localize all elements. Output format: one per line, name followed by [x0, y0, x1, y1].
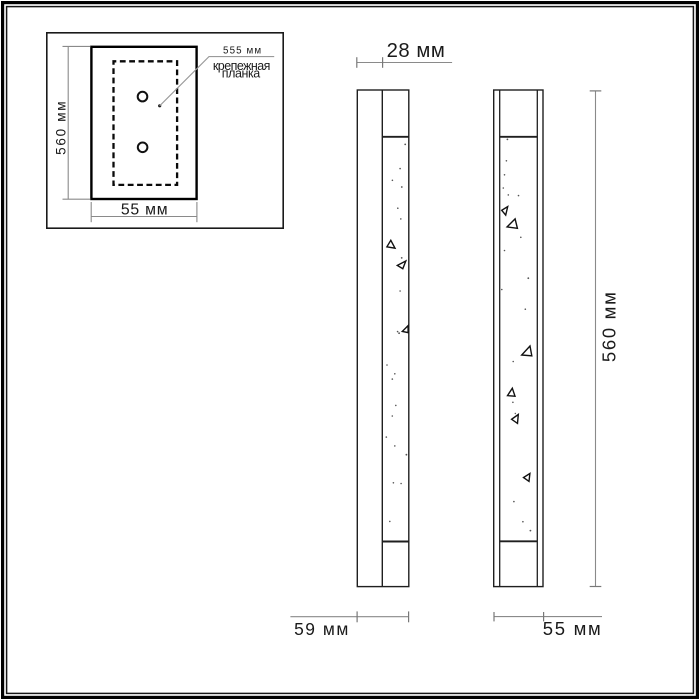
svg-text:555 мм: 555 мм — [223, 46, 262, 57]
svg-text:560 мм: 560 мм — [53, 100, 68, 155]
svg-text:59 мм: 59 мм — [294, 619, 350, 639]
svg-text:560 мм: 560 мм — [599, 290, 620, 362]
svg-text:28 мм: 28 мм — [387, 40, 446, 62]
svg-text:планка: планка — [222, 67, 261, 81]
svg-text:55 мм: 55 мм — [121, 202, 168, 219]
svg-text:55 мм: 55 мм — [543, 618, 603, 639]
